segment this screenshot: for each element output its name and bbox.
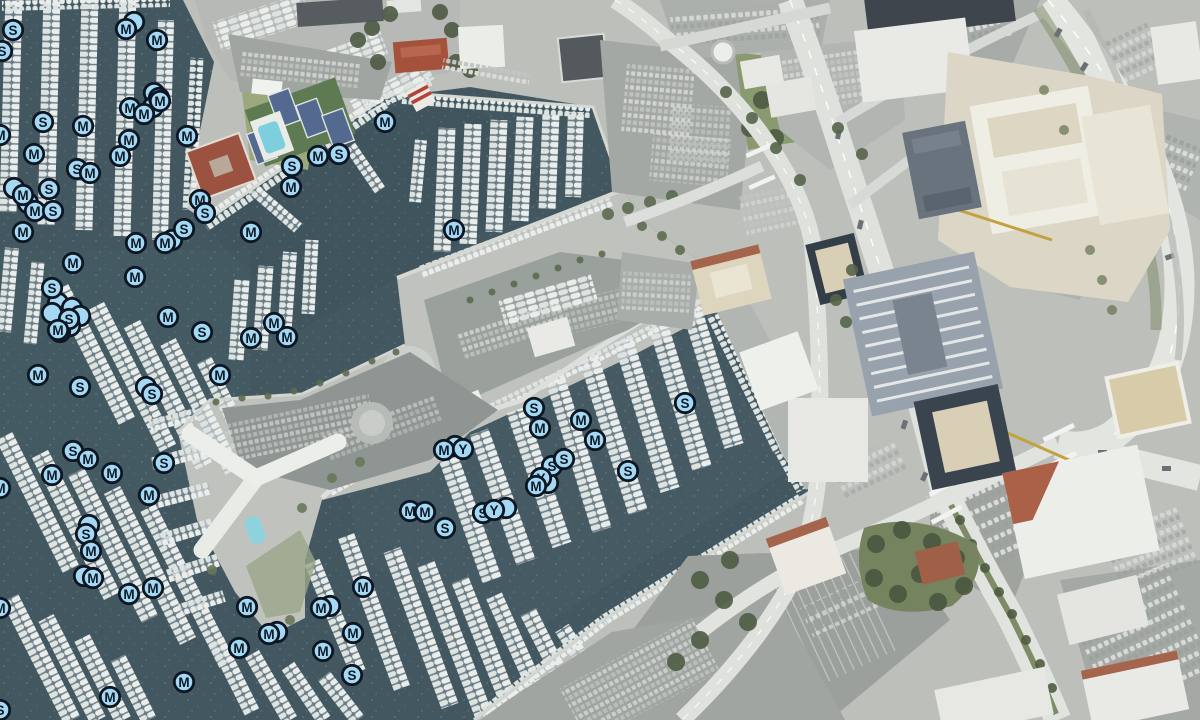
svg-text:M: M bbox=[214, 368, 225, 383]
svg-text:M: M bbox=[0, 481, 6, 496]
svg-text:M: M bbox=[233, 641, 244, 656]
svg-text:M: M bbox=[46, 468, 57, 483]
svg-text:M: M bbox=[77, 119, 88, 134]
svg-text:M: M bbox=[438, 443, 449, 458]
svg-text:M: M bbox=[268, 316, 279, 331]
svg-text:S: S bbox=[68, 444, 77, 459]
svg-text:M: M bbox=[241, 600, 252, 615]
svg-text:S: S bbox=[623, 464, 632, 479]
svg-text:M: M bbox=[347, 626, 358, 641]
svg-text:M: M bbox=[151, 33, 162, 48]
svg-text:M: M bbox=[143, 488, 154, 503]
svg-text:S: S bbox=[81, 527, 90, 542]
svg-text:M: M bbox=[575, 413, 586, 428]
svg-text:M: M bbox=[0, 601, 6, 616]
svg-text:M: M bbox=[263, 627, 274, 642]
svg-text:M: M bbox=[534, 421, 545, 436]
svg-text:M: M bbox=[17, 188, 28, 203]
svg-text:M: M bbox=[17, 225, 28, 240]
svg-text:S: S bbox=[440, 521, 449, 536]
svg-text:S: S bbox=[147, 387, 156, 402]
svg-text:M: M bbox=[181, 129, 192, 144]
svg-text:M: M bbox=[29, 204, 40, 219]
svg-text:S: S bbox=[47, 281, 56, 296]
svg-text:S: S bbox=[0, 703, 5, 718]
svg-text:M: M bbox=[285, 180, 296, 195]
svg-text:S: S bbox=[197, 325, 206, 340]
svg-text:M: M bbox=[159, 236, 170, 251]
svg-text:M: M bbox=[106, 466, 117, 481]
svg-text:M: M bbox=[530, 479, 541, 494]
svg-text:S: S bbox=[48, 204, 57, 219]
svg-text:S: S bbox=[680, 396, 689, 411]
svg-text:S: S bbox=[75, 380, 84, 395]
svg-text:S: S bbox=[529, 401, 538, 416]
svg-text:M: M bbox=[120, 22, 131, 37]
svg-text:M: M bbox=[28, 147, 39, 162]
svg-text:S: S bbox=[8, 23, 17, 38]
svg-text:S: S bbox=[200, 206, 209, 221]
svg-text:S: S bbox=[44, 182, 53, 197]
svg-text:M: M bbox=[114, 149, 125, 164]
svg-text:Y: Y bbox=[458, 442, 467, 457]
svg-text:M: M bbox=[82, 452, 93, 467]
svg-text:M: M bbox=[0, 128, 6, 143]
svg-text:M: M bbox=[315, 601, 326, 616]
svg-text:M: M bbox=[448, 223, 459, 238]
svg-text:M: M bbox=[162, 310, 173, 325]
svg-text:M: M bbox=[178, 675, 189, 690]
svg-text:M: M bbox=[123, 587, 134, 602]
svg-text:M: M bbox=[104, 690, 115, 705]
svg-text:S: S bbox=[179, 222, 188, 237]
svg-text:M: M bbox=[379, 115, 390, 130]
svg-text:M: M bbox=[589, 433, 600, 448]
svg-text:S: S bbox=[38, 115, 47, 130]
svg-text:M: M bbox=[130, 236, 141, 251]
svg-text:S: S bbox=[347, 668, 356, 683]
svg-text:S: S bbox=[334, 147, 343, 162]
svg-text:S: S bbox=[0, 44, 7, 59]
svg-text:S: S bbox=[159, 456, 168, 471]
svg-text:M: M bbox=[87, 571, 98, 586]
svg-text:Y: Y bbox=[489, 503, 498, 518]
svg-text:M: M bbox=[84, 166, 95, 181]
svg-text:M: M bbox=[357, 580, 368, 595]
svg-text:M: M bbox=[129, 270, 140, 285]
svg-text:S: S bbox=[559, 452, 568, 467]
svg-text:M: M bbox=[52, 323, 63, 338]
svg-text:M: M bbox=[419, 505, 430, 520]
svg-text:M: M bbox=[154, 94, 165, 109]
svg-text:M: M bbox=[147, 581, 158, 596]
svg-text:M: M bbox=[317, 644, 328, 659]
svg-text:S: S bbox=[287, 159, 296, 174]
svg-text:M: M bbox=[138, 107, 149, 122]
svg-text:M: M bbox=[32, 368, 43, 383]
svg-text:M: M bbox=[85, 544, 96, 559]
svg-text:M: M bbox=[245, 225, 256, 240]
svg-text:M: M bbox=[281, 330, 292, 345]
svg-text:M: M bbox=[67, 256, 78, 271]
svg-text:M: M bbox=[312, 149, 323, 164]
svg-text:M: M bbox=[245, 331, 256, 346]
svg-text:M: M bbox=[123, 133, 134, 148]
